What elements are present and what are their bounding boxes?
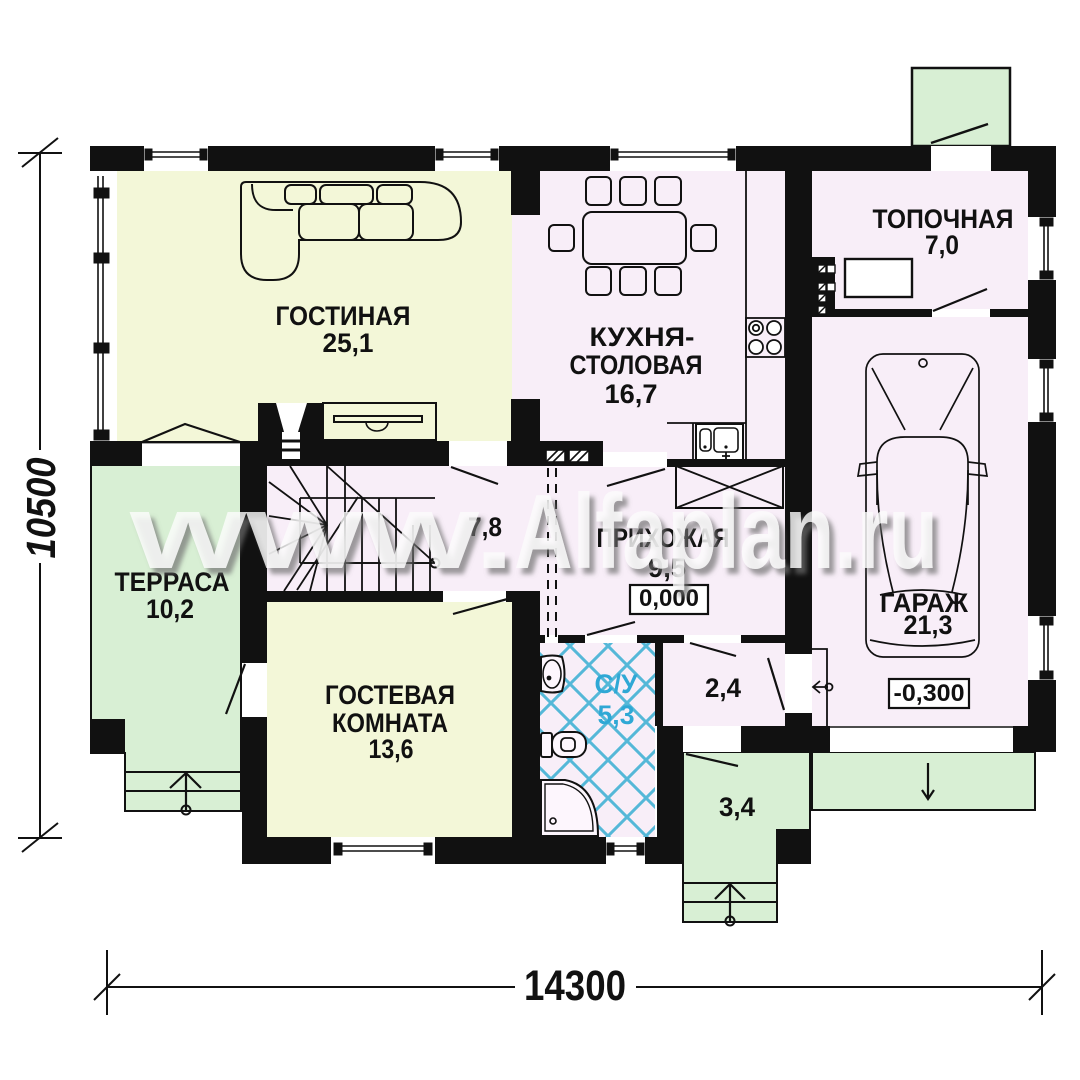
svg-text:13,6: 13,6 — [369, 734, 414, 764]
svg-text:-0,300: -0,300 — [894, 680, 965, 707]
svg-text:3,4: 3,4 — [719, 792, 755, 822]
svg-text:10,2: 10,2 — [146, 594, 194, 624]
svg-text:ГОСТЕВАЯ: ГОСТЕВАЯ — [325, 680, 455, 710]
svg-text:Alfaplan.ru: Alfaplan.ru — [514, 473, 938, 591]
svg-text:2,4: 2,4 — [705, 673, 741, 703]
svg-text:21,3: 21,3 — [904, 610, 953, 640]
svg-text:16,7: 16,7 — [605, 379, 658, 409]
svg-text:КУХНЯ-: КУХНЯ- — [590, 322, 695, 352]
svg-text:ГОСТИНАЯ: ГОСТИНАЯ — [276, 301, 411, 331]
svg-text:5,3: 5,3 — [598, 700, 635, 730]
svg-text:25,1: 25,1 — [323, 328, 374, 358]
svg-text:С/У: С/У — [595, 669, 639, 699]
svg-text:14300: 14300 — [524, 962, 626, 1010]
svg-text:СТОЛОВАЯ: СТОЛОВАЯ — [570, 350, 703, 380]
svg-text:7,0: 7,0 — [925, 230, 959, 260]
svg-text:10500: 10500 — [18, 457, 64, 558]
svg-text:www.: www. — [129, 473, 515, 591]
